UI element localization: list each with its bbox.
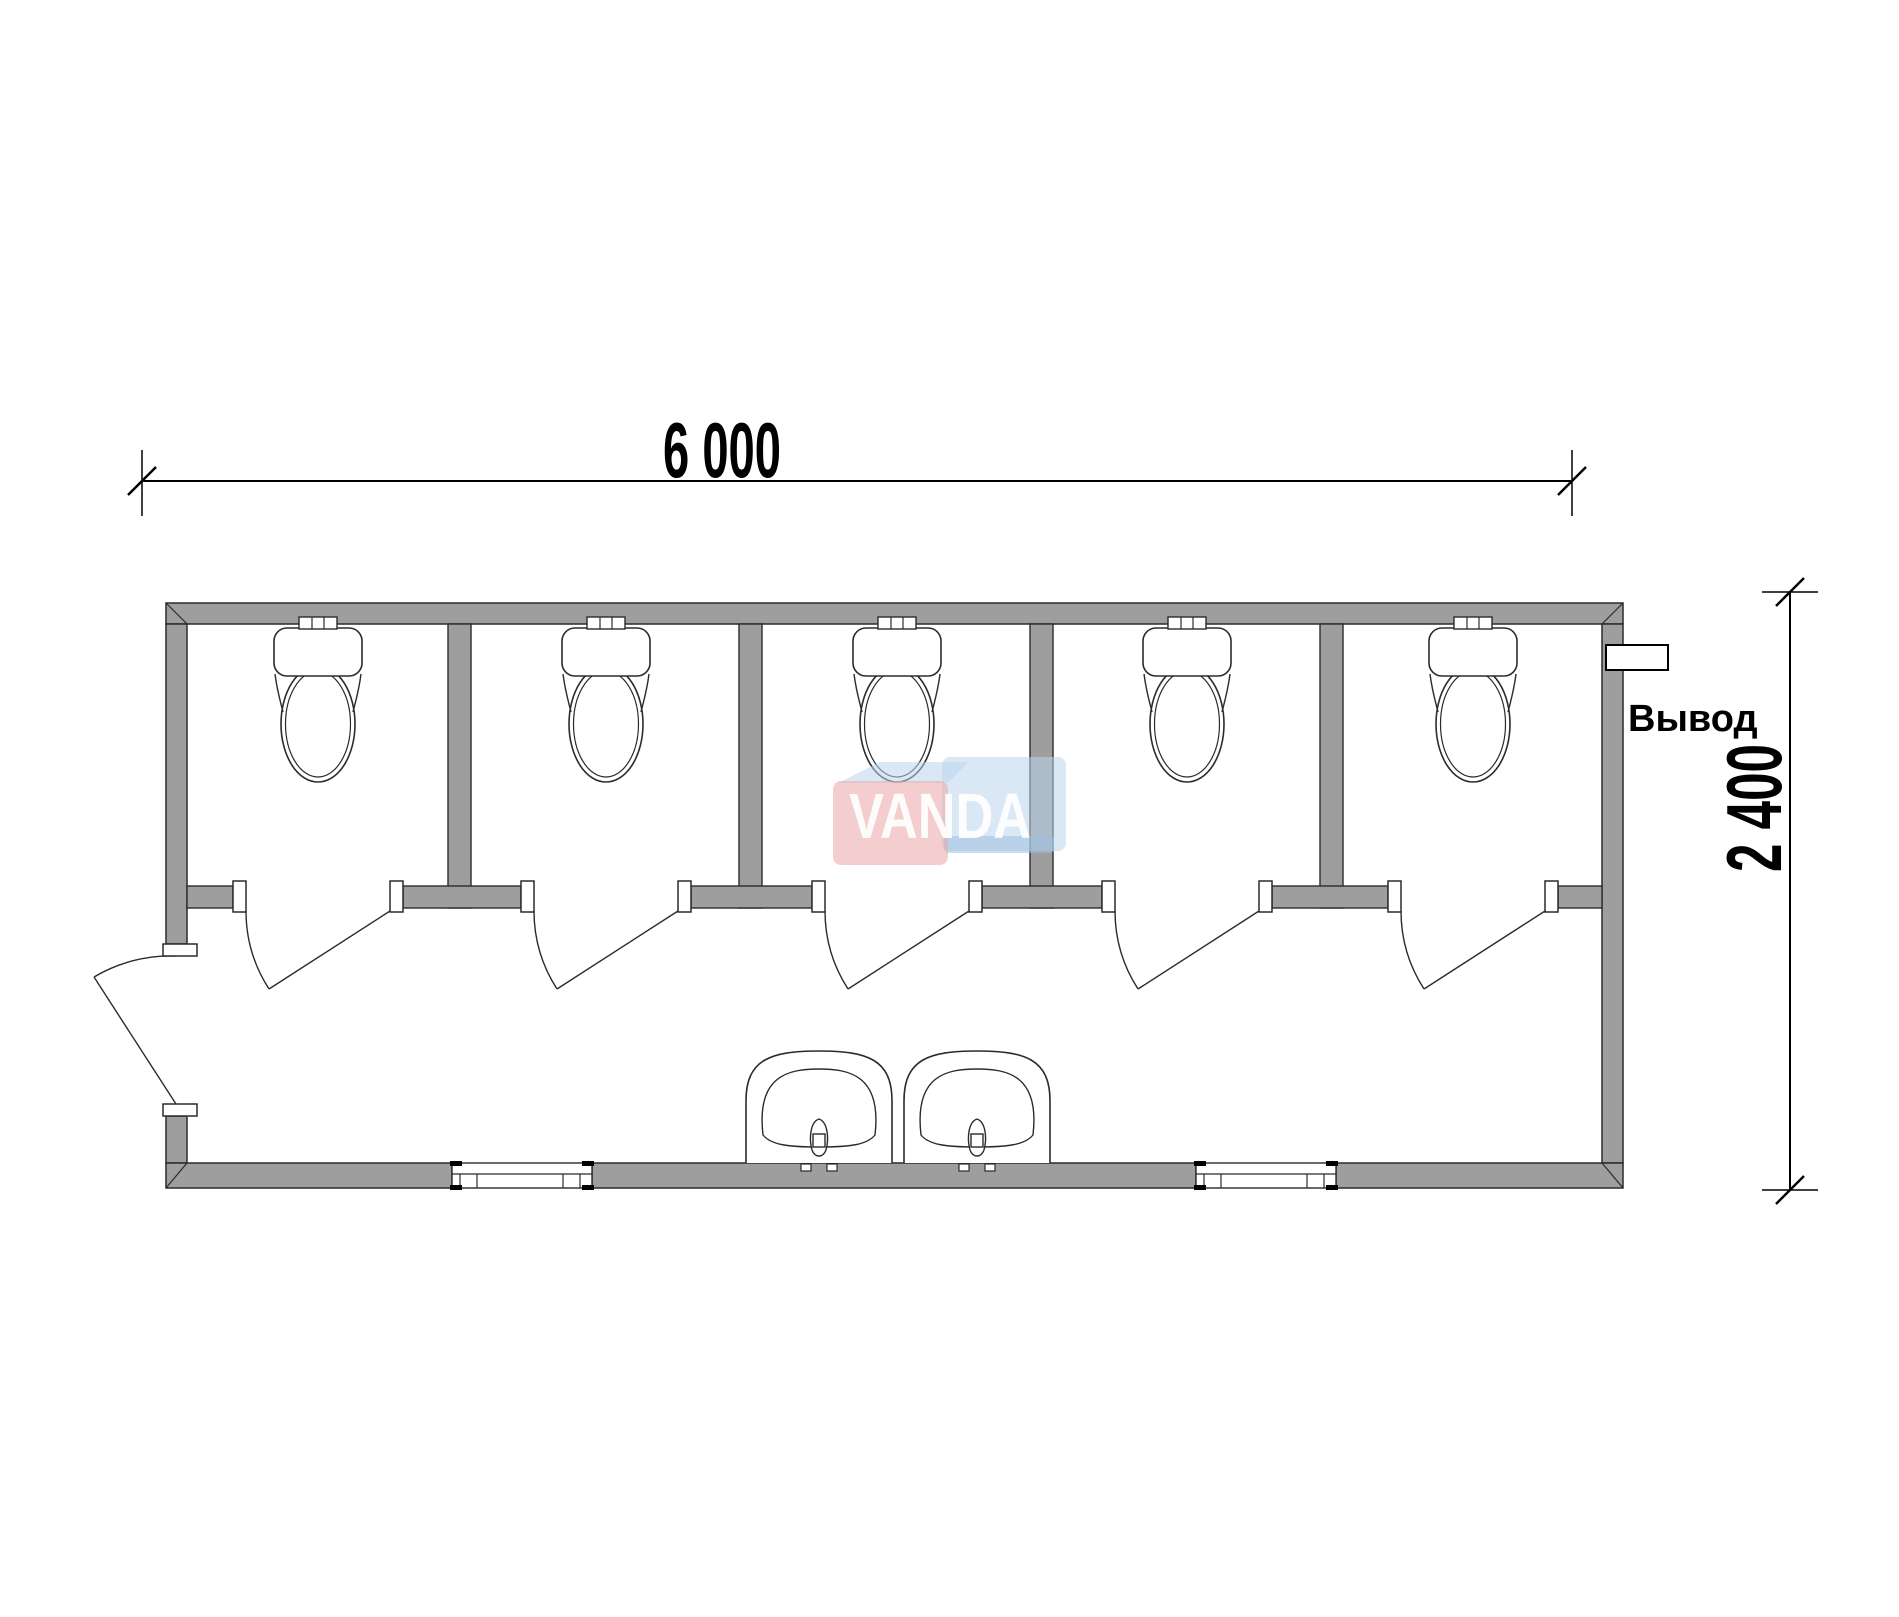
- bottom-wall-left: [166, 1163, 452, 1188]
- floor-plan-page: 6 000 2 400: [0, 0, 1899, 1617]
- sink-2: [904, 1051, 1050, 1171]
- entrance-jamb-top: [163, 944, 197, 956]
- bottom-wall-middle: [592, 1163, 1196, 1188]
- floor-plan-drawing: 6 000 2 400: [0, 0, 1899, 1617]
- partition-2: [739, 624, 762, 908]
- stall-door-4: [1102, 881, 1272, 989]
- toilet-2: [562, 617, 650, 782]
- outlet-pipe: [1606, 645, 1668, 670]
- toilet-3: [853, 617, 941, 782]
- stall-door-1: [233, 881, 403, 989]
- bottom-wall-right: [1336, 1163, 1623, 1188]
- toilet-5: [1429, 617, 1517, 782]
- width-dimension: 6 000: [128, 406, 1586, 516]
- left-wall-upper: [166, 624, 187, 944]
- width-dimension-label: 6 000: [663, 406, 781, 494]
- height-dimension: 2 400: [1710, 578, 1818, 1204]
- stall-door-3: [812, 881, 982, 989]
- left-wall-lower: [166, 1116, 187, 1163]
- toilet-4: [1143, 617, 1231, 782]
- stall-door-5: [1388, 881, 1558, 989]
- outlet-label: Вывод: [1628, 698, 1758, 740]
- watermark-text: VANDA: [849, 780, 1031, 852]
- window-2: [1194, 1161, 1338, 1190]
- stall-door-2: [521, 881, 691, 989]
- height-dimension-label: 2 400: [1710, 744, 1798, 872]
- sink-1: [746, 1051, 892, 1171]
- entrance-jamb-bottom: [163, 1104, 197, 1116]
- vanda-watermark: VANDA: [833, 757, 1066, 865]
- toilet-1: [274, 617, 362, 782]
- partition-1: [448, 624, 471, 908]
- partition-4: [1320, 624, 1343, 908]
- window-1: [450, 1161, 594, 1190]
- utility-outlet: Вывод: [1606, 645, 1758, 740]
- entrance-door: [94, 944, 197, 1116]
- right-wall: [1602, 624, 1623, 1163]
